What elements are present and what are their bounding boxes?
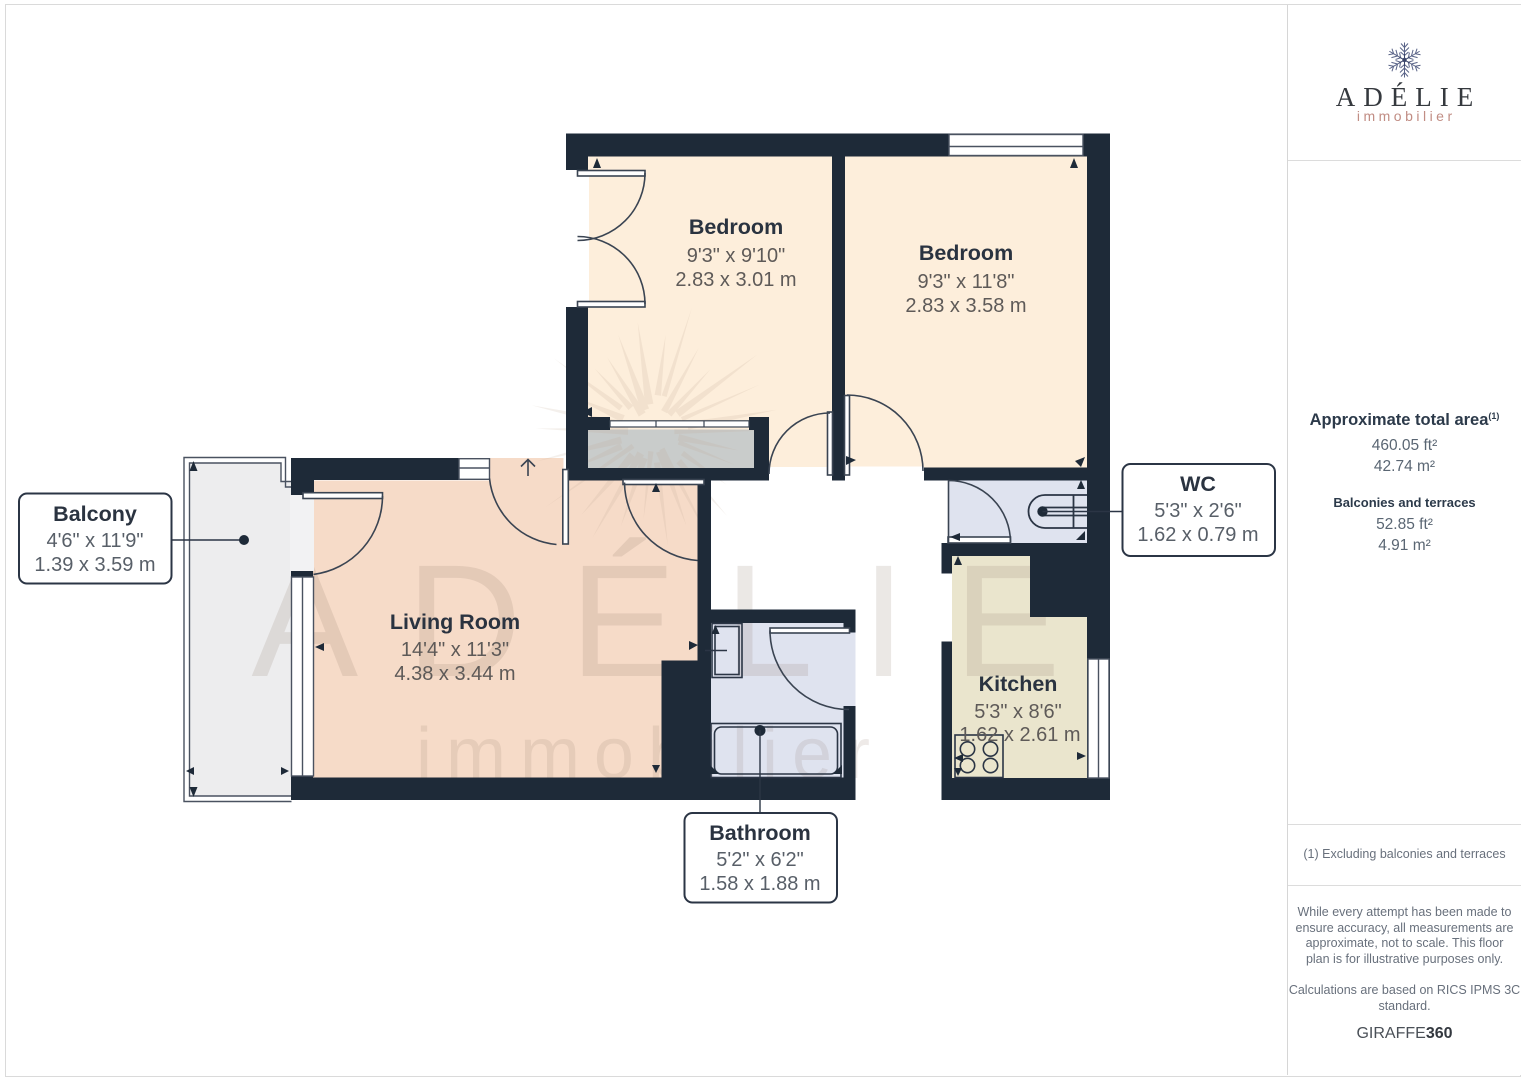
svg-text:4'6" x 11'9": 4'6" x 11'9" [46,530,143,552]
svg-text:1.58 x 1.88 m: 1.58 x 1.88 m [699,873,820,895]
svg-text:WC: WC [1180,472,1216,496]
svg-text:Bedroom: Bedroom [689,215,783,239]
svg-text:1.62 x 0.79 m: 1.62 x 0.79 m [1137,524,1258,546]
svg-text:Balcony: Balcony [53,502,137,526]
svg-text:1.39 x 3.59 m: 1.39 x 3.59 m [34,554,155,576]
svg-text:Bedroom: Bedroom [919,241,1013,265]
svg-text:1.62 x 2.61 m: 1.62 x 2.61 m [959,724,1080,746]
svg-text:2.83 x 3.01 m: 2.83 x 3.01 m [675,269,796,291]
svg-text:5'3" x 8'6": 5'3" x 8'6" [974,701,1061,723]
svg-text:4.38 x 3.44 m: 4.38 x 3.44 m [394,663,515,685]
svg-text:14'4" x 11'3": 14'4" x 11'3" [401,639,509,661]
svg-text:Kitchen: Kitchen [979,672,1058,696]
svg-text:2.83 x 3.58 m: 2.83 x 3.58 m [905,295,1026,317]
svg-text:Living Room: Living Room [390,610,520,634]
svg-text:9'3" x 11'8": 9'3" x 11'8" [917,271,1014,293]
svg-text:9'3" x 9'10": 9'3" x 9'10" [687,245,786,267]
svg-text:5'3" x 2'6": 5'3" x 2'6" [1154,500,1241,522]
svg-text:Bathroom: Bathroom [709,821,811,845]
svg-text:5'2" x 6'2": 5'2" x 6'2" [716,849,803,871]
